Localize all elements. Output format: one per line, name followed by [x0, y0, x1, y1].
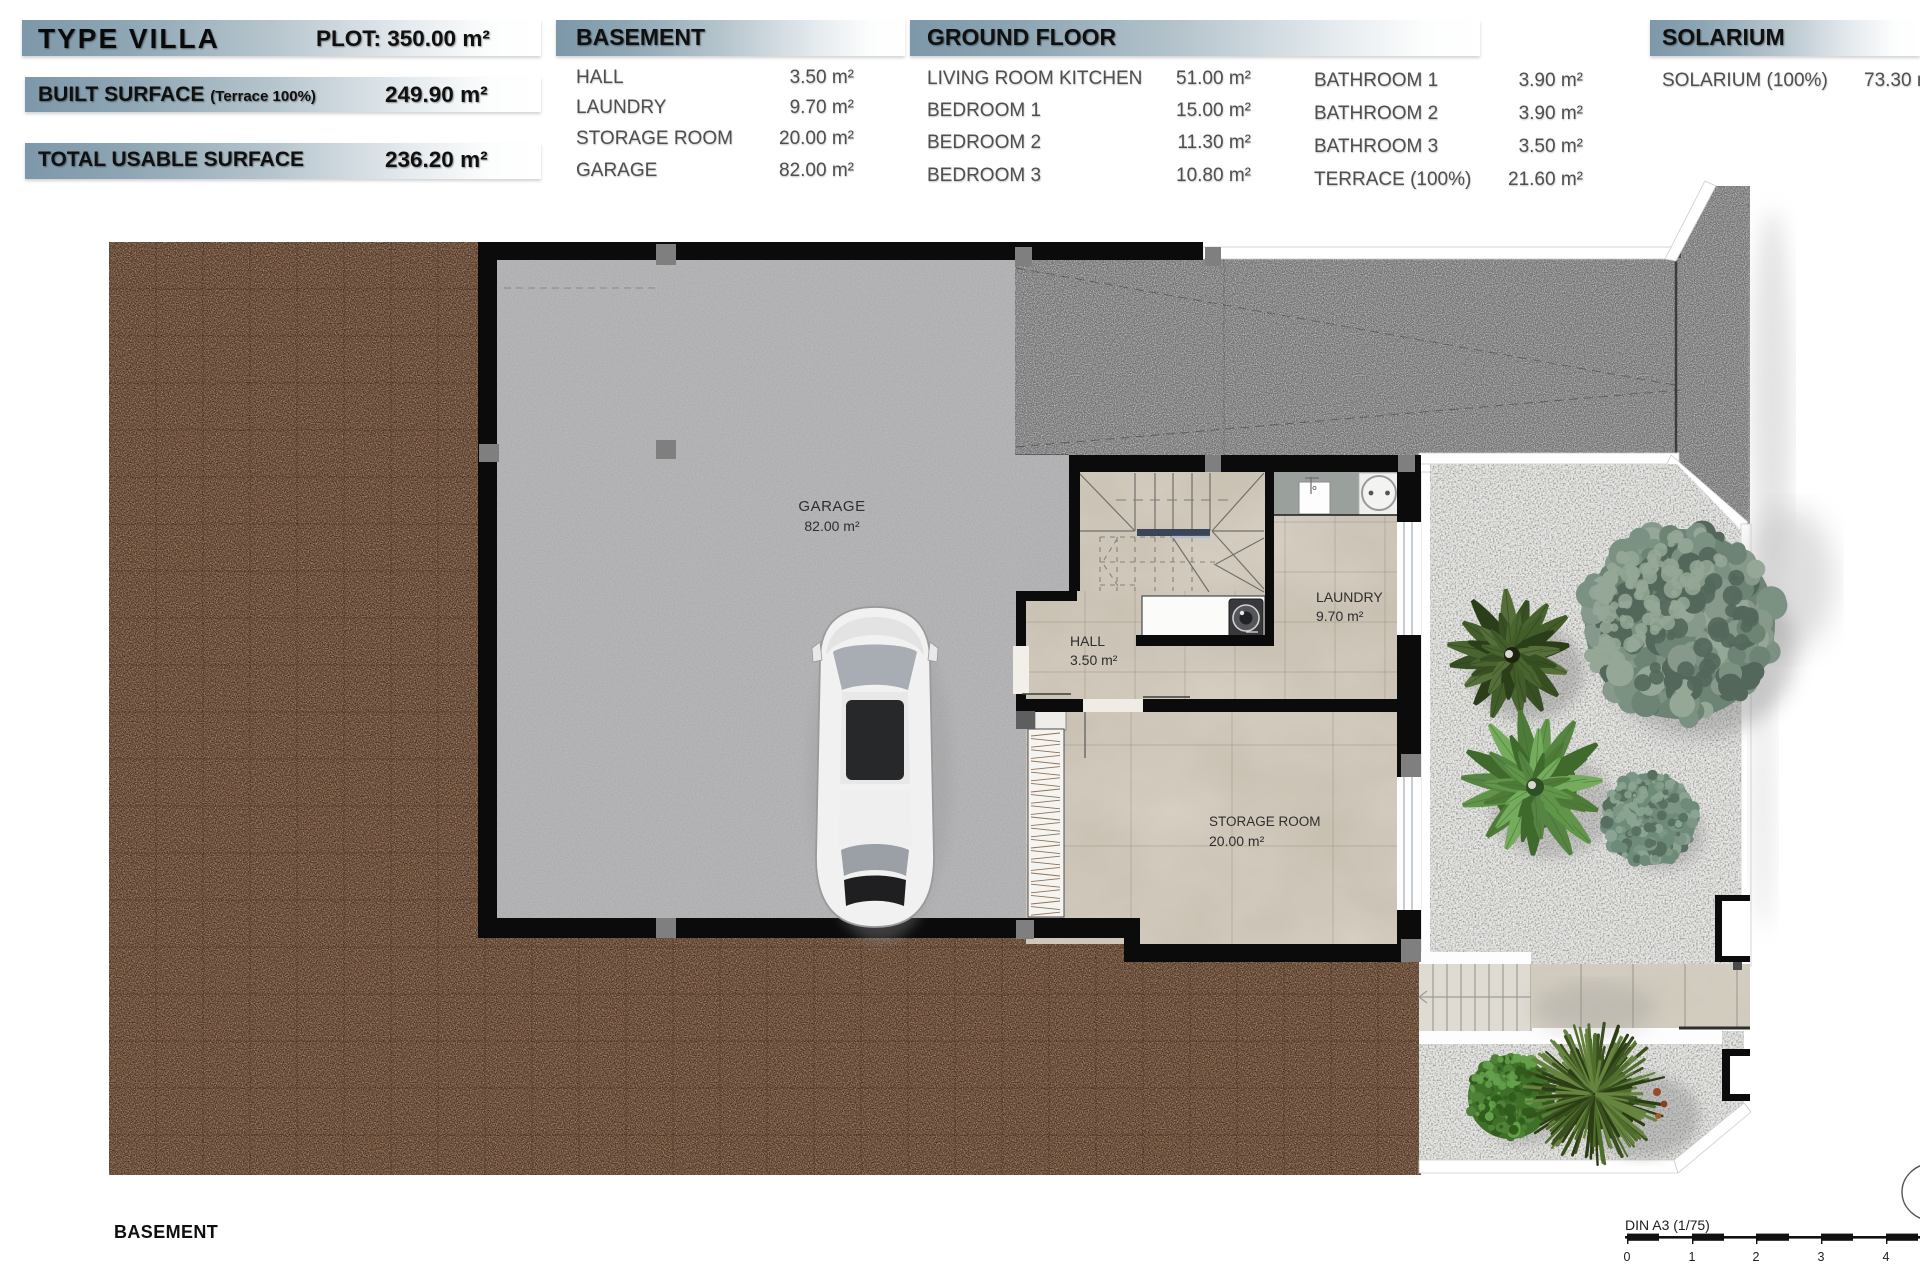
svg-text:2: 2: [1753, 1250, 1760, 1264]
svg-text:20.00 m²: 20.00 m²: [1209, 833, 1265, 849]
svg-text:9.70 m²: 9.70 m²: [1316, 608, 1364, 624]
svg-text:HALL: HALL: [1070, 633, 1105, 649]
svg-text:3.50 m²: 3.50 m²: [1070, 652, 1118, 668]
svg-text:LAUNDRY: LAUNDRY: [1316, 589, 1383, 605]
svg-text:0: 0: [1624, 1250, 1631, 1264]
svg-text:GARAGE: GARAGE: [798, 498, 865, 515]
svg-text:82.00 m²: 82.00 m²: [804, 518, 860, 534]
svg-text:4: 4: [1883, 1250, 1890, 1264]
svg-text:3: 3: [1818, 1250, 1825, 1264]
svg-text:DIN A3 (1/75): DIN A3 (1/75): [1625, 1217, 1710, 1233]
svg-text:BASEMENT: BASEMENT: [114, 1222, 218, 1242]
svg-text:1: 1: [1689, 1250, 1696, 1264]
svg-text:STORAGE ROOM: STORAGE ROOM: [1209, 814, 1321, 829]
